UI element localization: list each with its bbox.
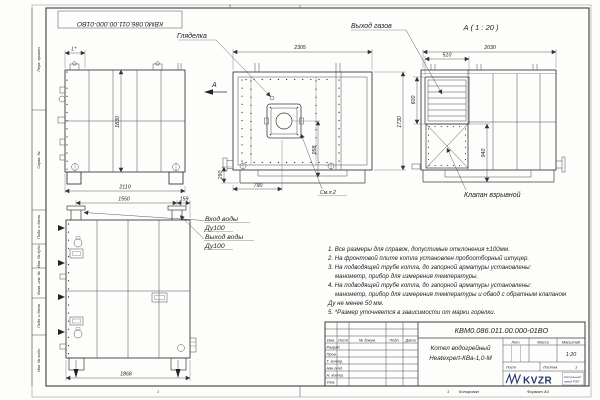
view-a-title: А ( 1 : 20 ) [462, 23, 499, 32]
front-lugs [255, 63, 340, 72]
water-inlet-callout: Вход воды Ду100 [84, 213, 250, 233]
tb-row-prov: Пров. [327, 351, 337, 356]
strip-vzam-inv: Взам. инв. № [37, 271, 41, 294]
tb-scale-value: 1:20 [566, 352, 577, 358]
svg-text:L*: L* [72, 47, 78, 53]
footer-copied: Копировал [459, 389, 480, 394]
view-arrow-label: А [211, 82, 217, 89]
strip-inv-dubl: Инв. № дубл. [37, 244, 41, 267]
svg-text:290: 290 [218, 171, 224, 181]
manholes [70, 249, 167, 325]
doc-number-stamp: КВМ0.086.011.00.000-01ВО [58, 11, 182, 28]
dim-1730: 1730 [374, 72, 406, 170]
strip-inv-podl: Инв. № подл. [37, 348, 41, 372]
tb-col-docnum: № докум. [359, 337, 376, 342]
water-outlet-label: Выход воды [205, 233, 243, 241]
gauges [74, 237, 184, 352]
tb-product-name-2: Heatexpert-КВа-1,0-М [429, 355, 492, 362]
tb-row-nachotd: Нач.отд. [327, 365, 343, 370]
gas-outlet-grille [425, 77, 469, 124]
panel-seams-rear [66, 220, 190, 358]
notes-block: 1. Все размеры для справок, допустимые о… [327, 246, 567, 316]
dim-1868: 1868 [66, 360, 190, 381]
footer-num: 1 [447, 389, 449, 394]
title-block: Изм. Лист № докум. Подп. Дата Разраб. Пр… [325, 322, 585, 387]
strip-podp-data-1: Подп. и дата [37, 215, 41, 239]
note-line: Ду не менее 50 мм. [327, 300, 383, 307]
water-inlet-pipe [67, 206, 85, 220]
svg-text:159: 159 [180, 197, 189, 203]
side-view: L* 1830 2110 [58, 47, 185, 194]
note-line: 5. *Размер уточняется в зависимости от м… [328, 309, 495, 316]
tb-sheet-label: Лист [505, 365, 517, 370]
legs [67, 163, 183, 184]
svg-text:958: 958 [312, 146, 318, 155]
dim-510: 510 [425, 53, 469, 76]
front-view: А Гляделка См.п.2 2305 1730 958 [177, 32, 406, 196]
svg-text:790: 790 [254, 183, 263, 189]
drawing-sheet: Перв. примен. Справ. № Подп. и дата Инв.… [0, 0, 600, 400]
front-base [240, 170, 365, 183]
svg-text:1868: 1868 [120, 372, 132, 378]
dim-2110: 2110 [65, 174, 185, 193]
svg-text:510: 510 [443, 53, 452, 59]
tb-lit-label: Лит. [510, 339, 520, 344]
gas-outlet-label: Выход газов [351, 22, 392, 30]
zone-number-top: 1 [229, 4, 231, 8]
dim-1550: 1550 [76, 197, 177, 206]
footer-format: Формат А3 [527, 389, 550, 394]
svg-text:1830: 1830 [115, 116, 121, 128]
water-inlet-dn: Ду100 [204, 225, 225, 232]
tb-scale-label: Масштаб [562, 339, 581, 344]
explosion-valve [426, 124, 468, 168]
strip-podp-data-2: Подп. и дата [37, 304, 41, 328]
dim-1830: 1830 [115, 70, 121, 172]
tb-product-name-1: Котел водогрейный [431, 344, 491, 352]
svg-text:2305: 2305 [293, 45, 306, 51]
company-logo: KVZR Котельный завод РЭП [506, 373, 584, 387]
tb-mass-label: Масса [537, 339, 549, 344]
logo-caption-2: завод РЭП [563, 380, 580, 384]
sight-glass-callout: Гляделка [177, 32, 271, 97]
tb-col-izm: Изм. [327, 337, 335, 342]
right-flange-a [556, 157, 565, 172]
tb-col-data: Дата [404, 337, 416, 342]
note-line: 4. На подводящей трубе котла, до запорно… [328, 282, 532, 289]
front-feet [240, 163, 334, 170]
water-inlet-label: Вход воды [205, 215, 238, 223]
tb-col-podp: Подп. [389, 337, 399, 342]
svg-text:1550: 1550 [118, 197, 130, 203]
tb-doc-number: КВМ0.086.011.00.000-01ВО [455, 326, 549, 335]
explosion-valve-label: Клапан взрывной [464, 191, 521, 199]
note-line: 2. На фронтовой плите котла установлен п… [327, 255, 529, 262]
bolt-dots [242, 80, 339, 163]
left-edge-fittings [58, 225, 66, 349]
panel-seams-a [421, 70, 556, 170]
doc-number-stamp-text: КВМ0.086.011.00.000-01ВО [76, 20, 163, 27]
rear-view: 1550 159 1868 Вход воды Ду100 Выход воды… [58, 197, 254, 382]
view-direction-arrow: А [204, 82, 227, 95]
tb-sheets-label: Листов [542, 365, 557, 370]
tb-row-tkontr: Т. контр. [327, 358, 344, 363]
svg-text:1730: 1730 [397, 116, 403, 128]
note-line: 1. Все размеры для справок, допустимые о… [328, 246, 510, 253]
lugs-a [431, 64, 537, 70]
note-line: манометр, прибор для измерения температу… [335, 291, 567, 298]
left-flange [223, 158, 233, 171]
logo-text: KVZR [523, 376, 553, 387]
water-outlet-pipe [168, 206, 186, 220]
strip-perv-primen: Перв. примен. [37, 46, 41, 71]
svg-text:940: 940 [481, 149, 487, 158]
tb-row-nkontr: Н. контр. [327, 372, 345, 377]
dim-940: 940 [470, 124, 490, 182]
svg-text:2110: 2110 [118, 185, 130, 191]
lifting-lugs [70, 62, 181, 70]
dim-290: 290 [218, 167, 239, 183]
left-stub-a [412, 164, 420, 169]
ladder-bracket [190, 338, 196, 352]
strip-sprav-no: Справ. № [37, 151, 41, 168]
base-a [423, 170, 554, 182]
footer-strip: 1 Копировал Формат А3 [447, 389, 550, 394]
view-a: А ( 1 : 20 ) [351, 22, 565, 199]
note-line: манометр, прибор для измерения температу… [335, 273, 478, 280]
gas-outlet-callout: Выход газов [351, 22, 442, 94]
spring-icon [506, 375, 521, 384]
dim-2305: 2305 [233, 45, 372, 70]
tb-row-razrab: Разраб. [327, 344, 341, 349]
dim-790: 790 [233, 140, 282, 191]
panel-seams [65, 70, 185, 172]
dim-L: L* [65, 47, 85, 69]
note-line: 3. На подводящей трубе котла, до запорно… [328, 264, 532, 271]
see-note-label: См.п.2 [320, 190, 336, 196]
tb-col-list: Лист [337, 337, 349, 342]
dim-159: 159 [177, 197, 190, 219]
dim-600: 600 [411, 77, 424, 124]
drawing-canvas: Перв. примен. Справ. № Подп. и дата Инв.… [0, 0, 600, 400]
water-outlet-dn: Ду100 [204, 243, 225, 250]
svg-text:600: 600 [411, 96, 417, 105]
tb-sheets-value: 1 [575, 365, 577, 370]
sight-glass-label: Гляделка [177, 32, 207, 40]
sight-glass [270, 96, 274, 100]
svg-text:2030: 2030 [483, 45, 496, 51]
side-fittings [58, 87, 65, 160]
zone-number-bottom: 1 [157, 390, 159, 394]
tb-row-utv: Утв. [327, 379, 336, 384]
logo-caption-1: Котельный [564, 375, 581, 379]
